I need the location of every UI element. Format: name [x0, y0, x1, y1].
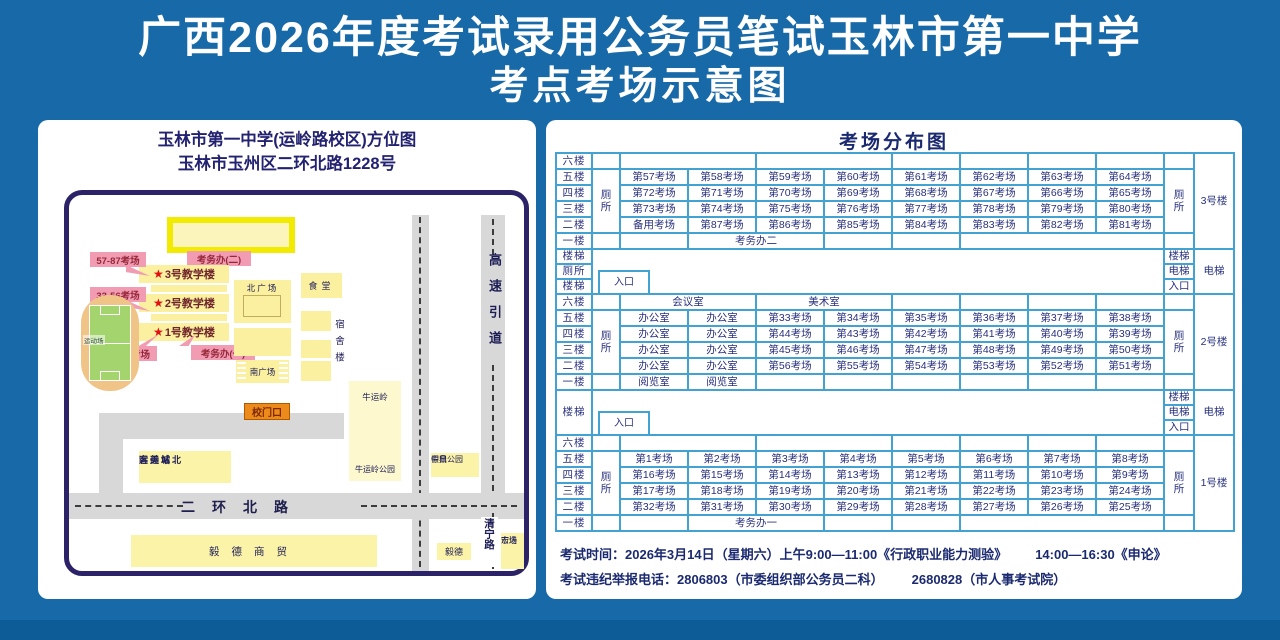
room-cell: 第24考场 [1096, 483, 1164, 499]
teaching-building-3: ★3号教学楼 [139, 265, 229, 283]
school-entrance-road [99, 413, 344, 439]
room-cell: 备用考场 [620, 217, 688, 233]
hongjin-market: 宏进 市场 [501, 533, 524, 569]
note-exam-time: 考试时间：2026年3月14日（星期六）上午9:00—11:00《行政职业能力测… [560, 544, 1234, 563]
floor-row: 五楼厕所办公室办公室第33考场第34考场第35考场第36考场第37考场第38考场… [556, 310, 1234, 326]
room-cell: 第16考场 [620, 467, 688, 483]
empty-cell [1096, 435, 1164, 451]
room-cell: 第67考场 [960, 185, 1028, 201]
empty-cell [892, 233, 960, 249]
floor-row: 四楼办公室办公室第44考场第43考场第42考场第41考场第40考场第39考场 [556, 326, 1234, 342]
zhongding-park: 中鼎公园 假日 [431, 453, 479, 477]
building-label: 2号楼 [1194, 294, 1234, 390]
stairs-elevator-cell: 楼梯 [1164, 390, 1194, 405]
room-cell: 第11考场 [960, 467, 1028, 483]
room-cell: 阅览室 [620, 374, 688, 390]
room-cell: 第76考场 [824, 201, 892, 217]
room-cell: 办公室 [688, 358, 756, 374]
elevator-cell: 电梯 [1194, 249, 1234, 294]
room-cell: 办公室 [688, 342, 756, 358]
floor-row: 六楼3号楼 [556, 153, 1234, 169]
note-report-phone: 考试违纪举报电话：2806803（市委组织部公务员二科）2680828（市人事考… [560, 569, 1234, 588]
star-icon: ★ [153, 267, 164, 281]
empty-cell [960, 435, 1028, 451]
empty-cell [756, 374, 824, 390]
empty-cell [960, 374, 1028, 390]
toilet-col-cell [1164, 294, 1194, 310]
zhongding-park-line2: 假日 [431, 454, 447, 465]
room-cell: 第44考场 [756, 326, 824, 342]
floor-row: 六楼会议室美术室2号楼 [556, 294, 1234, 310]
note-exam-time-afternoon: 14:00—16:30《申论》 [1035, 547, 1167, 562]
stairs-elevator-cell: 电梯 [1164, 264, 1194, 279]
room-cell: 第37考场 [1028, 310, 1096, 326]
floor-label: 一楼 [556, 233, 592, 249]
niuyunling-park-label: 牛运岭公园 [349, 464, 401, 475]
stairs-cell: 楼梯 [556, 279, 592, 294]
room-cell: 第33考场 [756, 310, 824, 326]
floor-label: 三楼 [556, 201, 592, 217]
dorm-block [301, 361, 331, 381]
room-cell: 考务办一 [688, 515, 824, 531]
room-cell: 第10考场 [1028, 467, 1096, 483]
canteen-label: 食堂 [308, 279, 334, 292]
room-cell: 第69考场 [824, 185, 892, 201]
toilet-label: 厕所 [1164, 169, 1194, 233]
road-erhuan-north: 二环北路 [69, 493, 524, 519]
floor-label: 二楼 [556, 358, 592, 374]
room-cell: 第14考场 [756, 467, 824, 483]
empty-cell [892, 294, 960, 310]
toilet-col-cell [592, 153, 620, 169]
toilet-col-cell [1164, 435, 1194, 451]
floor-row: 一楼考务办一 [556, 515, 1234, 531]
rooms-57-87-label: 57-87考场 [90, 252, 146, 267]
toilet-label: 厕所 [1164, 451, 1194, 515]
room-cell: 第48考场 [960, 342, 1028, 358]
floor-label: 六楼 [556, 435, 592, 451]
separator-row: 楼梯入口楼梯电梯 [556, 249, 1234, 264]
empty-cell [824, 233, 892, 249]
goal-box [100, 306, 120, 315]
star-icon: ★ [153, 296, 164, 310]
empty-cell [620, 435, 756, 451]
map-frame: 高速引道 二环北路 清宁路 考务办(二) ★3号教学楼 [64, 190, 529, 576]
room-cell: 第28考场 [892, 499, 960, 515]
stairs-elevator-cell: 电梯 [1164, 405, 1194, 420]
floor-label: 五楼 [556, 169, 592, 185]
room-cell: 第84考场 [892, 217, 960, 233]
niuyunling-label: 牛运岭 [349, 391, 401, 403]
floor-row: 五楼厕所第1考场第2考场第3考场第4考场第5考场第6考场第7考场第8考场厕所 [556, 451, 1234, 467]
room-cell: 第87考场 [688, 217, 756, 233]
empty-cell [1028, 153, 1096, 169]
stairs-elevator-cell: 入口 [1164, 420, 1194, 435]
floor-label: 五楼 [556, 310, 592, 326]
room-cell: 办公室 [620, 310, 688, 326]
toilet-col-cell [592, 294, 620, 310]
room-cell: 第82考场 [1028, 217, 1096, 233]
niuyunling-park-area: 牛运岭 牛运岭公园 [349, 381, 401, 481]
distribution-panel: 考场分布图 六楼3号楼五楼厕所第57考场第58考场第59考场第60考场第61考场… [546, 120, 1242, 599]
entrance-box: 入口 [598, 270, 650, 293]
floor-label: 二楼 [556, 499, 592, 515]
floor-row: 五楼厕所第57考场第58考场第59考场第60考场第61考场第62考场第63考场第… [556, 169, 1234, 185]
room-cell: 第63考场 [1028, 169, 1096, 185]
north-square-footprint [243, 295, 281, 317]
room-cell: 第36考场 [960, 310, 1028, 326]
empty-cell [1096, 294, 1164, 310]
room-cell: 第64考场 [1096, 169, 1164, 185]
toilet-col-cell [592, 515, 620, 531]
room-cell: 第31考场 [688, 499, 756, 515]
exam-table-body: 六楼3号楼五楼厕所第57考场第58考场第59考场第60考场第61考场第62考场第… [556, 153, 1234, 531]
room-cell: 第43考场 [824, 326, 892, 342]
distribution-title: 考场分布图 [546, 127, 1242, 154]
room-cell: 第3考场 [756, 451, 824, 467]
floor-label: 一楼 [556, 374, 592, 390]
empty-cell [892, 153, 960, 169]
floor-row: 四楼第72考场第71考场第70考场第69考场第68考场第67考场第66考场第65… [556, 185, 1234, 201]
teaching-building-2-label: 2号教学楼 [165, 295, 215, 311]
toilet-col-cell [592, 233, 620, 249]
empty-cell [1028, 435, 1096, 451]
room-cell: 第51考场 [1096, 358, 1164, 374]
room-cell: 第66考场 [1028, 185, 1096, 201]
separator-row: 楼梯入口楼梯电梯 [556, 390, 1234, 405]
poster-title: 广西2026年度考试录用公务员笔试玉林市第一中学 考点考场示意图 [0, 14, 1280, 110]
room-cell: 第32考场 [620, 499, 688, 515]
room-cell: 第50考场 [1096, 342, 1164, 358]
room-cell: 第72考场 [620, 185, 688, 201]
room-cell: 第13考场 [824, 467, 892, 483]
erhuan-dash-left [75, 505, 183, 507]
floor-row: 二楼办公室办公室第56考场第55考场第54考场第53考场第52考场第51考场 [556, 358, 1234, 374]
stairs-elevator-cell: 楼梯 [1164, 249, 1194, 264]
room-cell: 第83考场 [960, 217, 1028, 233]
room-cell: 美术室 [756, 294, 892, 310]
note-exam-time-label: 考试时间： [560, 547, 625, 562]
toilet-col-cell [1164, 153, 1194, 169]
room-cell: 第61考场 [892, 169, 960, 185]
yide-trade-center: 毅德商贸 [131, 535, 377, 567]
room-cell: 第74考场 [688, 201, 756, 217]
room-cell: 第39考场 [1096, 326, 1164, 342]
yide-building: 毅德 [437, 543, 471, 560]
room-cell: 第6考场 [960, 451, 1028, 467]
room-cell: 第22考场 [960, 483, 1028, 499]
south-square-label: 南广场 [250, 366, 276, 378]
room-cell: 第27考场 [960, 499, 1028, 515]
goal-box [100, 371, 120, 380]
room-cell: 第49考场 [1028, 342, 1096, 358]
campus-map: 高速引道 二环北路 清宁路 考务办(二) ★3号教学楼 [69, 195, 524, 571]
toilet-col-cell [1164, 233, 1194, 249]
ground-area-cell: 入口 [592, 249, 1164, 294]
ground-area-cell: 入口 [592, 390, 1164, 435]
room-cell: 第80考场 [1096, 201, 1164, 217]
sports-field-label: 运动场 [83, 335, 105, 345]
room-cell: 第7考场 [1028, 451, 1096, 467]
yide-label: 毅德 [445, 545, 463, 558]
room-cell: 第59考场 [756, 169, 824, 185]
room-cell: 第12考场 [892, 467, 960, 483]
floor-label: 一楼 [556, 515, 592, 531]
floor-label: 三楼 [556, 342, 592, 358]
empty-cell [1028, 374, 1096, 390]
empty-cell [960, 515, 1164, 531]
toilet-label: 厕所 [592, 169, 620, 233]
room-cell: 第54考场 [892, 358, 960, 374]
room-cell: 第19考场 [756, 483, 824, 499]
bus-station: 运美城北 客运站 [139, 451, 231, 483]
bottom-strip [0, 620, 1280, 640]
room-cell: 第75考场 [756, 201, 824, 217]
floor-label: 四楼 [556, 467, 592, 483]
room-cell: 第73考场 [620, 201, 688, 217]
entrance-box: 入口 [598, 411, 650, 434]
title-line-1: 广西2026年度考试录用公务员笔试玉林市第一中学 [0, 14, 1280, 63]
building-label: 3号楼 [1194, 153, 1234, 249]
room-cell: 第65考场 [1096, 185, 1164, 201]
erhuan-dash-right [361, 505, 517, 507]
room-cell: 会议室 [620, 294, 756, 310]
room-cell: 办公室 [620, 326, 688, 342]
room-cell: 第70考场 [756, 185, 824, 201]
room-cell: 第35考场 [892, 310, 960, 326]
erhuan-road-label: 二环北路 [181, 497, 305, 517]
room-cell: 第21考场 [892, 483, 960, 499]
empty-cell [756, 153, 892, 169]
room-cell: 第38考场 [1096, 310, 1164, 326]
empty-cell [620, 153, 756, 169]
floor-label: 五楼 [556, 451, 592, 467]
south-square: 南广场 [236, 360, 289, 383]
room-cell: 第29考场 [824, 499, 892, 515]
floor-row: 四楼第16考场第15考场第14考场第13考场第12考场第11考场第10考场第9考… [556, 467, 1234, 483]
note-report-phone-1: 2806803（市委组织部公务员二科） [677, 572, 884, 587]
floor-label: 四楼 [556, 185, 592, 201]
room-cell: 第46考场 [824, 342, 892, 358]
floor-label: 六楼 [556, 153, 592, 169]
stairs-cell: 楼梯 [556, 390, 592, 435]
floor-label: 四楼 [556, 326, 592, 342]
stairs-cell: 厕所 [556, 264, 592, 279]
ramp-dash-top [492, 219, 494, 255]
map-heading-line2: 玉林市玉州区二环北路1228号 [38, 153, 536, 177]
toilet-label: 厕所 [1164, 310, 1194, 374]
empty-cell [824, 515, 892, 531]
highway-ramp-label: 高速引道 [485, 253, 504, 369]
toilet-col-cell [592, 374, 620, 390]
building-label: 1号楼 [1194, 435, 1234, 531]
room-cell: 办公室 [620, 342, 688, 358]
dorm-block [301, 311, 331, 331]
canteen-building: 食堂 [301, 273, 342, 298]
floor-label: 二楼 [556, 217, 592, 233]
room-cell: 第17考场 [620, 483, 688, 499]
teaching-building-3-label: 3号教学楼 [165, 266, 215, 282]
exam-table: 六楼3号楼五楼厕所第57考场第58考场第59考场第60考场第61考场第62考场第… [555, 152, 1235, 532]
floor-row: 一楼阅览室阅览室 [556, 374, 1234, 390]
room-cell: 办公室 [688, 310, 756, 326]
room-cell: 第4考场 [824, 451, 892, 467]
room-cell: 第42考场 [892, 326, 960, 342]
floor-row: 二楼备用考场第87考场第86考场第85考场第84考场第83考场第82考场第81考… [556, 217, 1234, 233]
room-cell: 办公室 [620, 358, 688, 374]
room-cell: 第26考场 [1028, 499, 1096, 515]
room-cell: 第45考场 [756, 342, 824, 358]
toilet-col-cell [592, 435, 620, 451]
room-cell: 第78考场 [960, 201, 1028, 217]
ring-building [167, 217, 295, 253]
note-exam-time-morning: 2026年3月14日（星期六）上午9:00—11:00《行政职业能力测验》 [625, 547, 1007, 562]
toilet-label: 厕所 [592, 451, 620, 515]
elevator-cell: 电梯 [1194, 390, 1234, 435]
empty-cell [892, 515, 960, 531]
empty-cell [960, 233, 1164, 249]
north-square-label: 北广场 [234, 282, 291, 294]
building-wing [151, 314, 227, 321]
floor-row: 一楼考务办二 [556, 233, 1234, 249]
building-wing [151, 285, 227, 292]
room-cell: 第81考场 [1096, 217, 1164, 233]
teaching-building-2: ★2号教学楼 [139, 294, 229, 312]
room-cell: 第30考场 [756, 499, 824, 515]
room-cell: 第60考场 [824, 169, 892, 185]
sports-field: 运动场 [81, 295, 139, 391]
room-cell: 第41考场 [960, 326, 1028, 342]
school-entrance-road-branch [99, 413, 123, 497]
toilet-label: 厕所 [592, 310, 620, 374]
map-panel: 玉林市第一中学(运岭路校区)方位图 玉林市玉州区二环北路1228号 高速引道 二… [38, 120, 536, 599]
poster-page: 广西2026年度考试录用公务员笔试玉林市第一中学 考点考场示意图 玉林市第一中学… [0, 0, 1280, 640]
ramp-dash-bottom [492, 365, 494, 491]
room-cell: 第2考场 [688, 451, 756, 467]
room-cell: 第34考场 [824, 310, 892, 326]
room-cell: 第62考场 [960, 169, 1028, 185]
empty-cell [756, 435, 892, 451]
room-cell: 第79考场 [1028, 201, 1096, 217]
room-cell: 第40考场 [1028, 326, 1096, 342]
room-cell: 第23考场 [1028, 483, 1096, 499]
toilet-col-cell [1164, 515, 1194, 531]
stairs-cell: 楼梯 [556, 249, 592, 264]
floor-label: 六楼 [556, 294, 592, 310]
room-cell: 第25考场 [1096, 499, 1164, 515]
hongjin-market-line2: 市场 [501, 535, 517, 548]
room-cell: 第5考场 [892, 451, 960, 467]
room-cell: 第58考场 [688, 169, 756, 185]
empty-cell [892, 374, 960, 390]
map-heading: 玉林市第一中学(运岭路校区)方位图 玉林市玉州区二环北路1228号 [38, 129, 536, 177]
room-cell: 第1考场 [620, 451, 688, 467]
note-report-label: 考试违纪举报电话： [560, 572, 677, 587]
floor-row: 三楼办公室办公室第45考场第46考场第47考场第48考场第49考场第50考场 [556, 342, 1234, 358]
room-cell: 考务办二 [688, 233, 824, 249]
dorm-label: 宿舍楼 [331, 319, 345, 385]
floor-row: 三楼第73考场第74考场第75考场第76考场第77考场第78考场第79考场第80… [556, 201, 1234, 217]
room-cell: 第53考场 [960, 358, 1028, 374]
empty-cell [1096, 374, 1164, 390]
empty-cell [620, 515, 688, 531]
center-building [234, 328, 291, 356]
map-heading-line1: 玉林市第一中学(运岭路校区)方位图 [38, 129, 536, 153]
north-square: 北广场 [234, 280, 291, 323]
dorm-block [301, 340, 331, 358]
stairs-elevator-cell: 入口 [1164, 279, 1194, 294]
note-report-phone-2: 2680828（市人事考试院） [912, 572, 1067, 587]
empty-cell [824, 374, 892, 390]
room-cell: 第68考场 [892, 185, 960, 201]
empty-cell [892, 435, 960, 451]
bus-station-line2: 客运站 [139, 454, 172, 468]
room-cell: 第8考场 [1096, 451, 1164, 467]
school-gate-label: 校门口 [244, 403, 290, 420]
floor-row: 六楼1号楼 [556, 435, 1234, 451]
room-cell: 第85考场 [824, 217, 892, 233]
room-cell: 第71考场 [688, 185, 756, 201]
teaching-building-1-label: 1号教学楼 [165, 324, 215, 340]
room-cell: 阅览室 [688, 374, 756, 390]
room-cell: 第18考场 [688, 483, 756, 499]
title-line-2: 考点考场示意图 [0, 65, 1280, 110]
floor-row: 二楼第32考场第31考场第30考场第29考场第28考场第27考场第26考场第25… [556, 499, 1234, 515]
room-cell: 办公室 [688, 326, 756, 342]
room-cell: 第9考场 [1096, 467, 1164, 483]
yide-trade-label: 毅德商贸 [209, 544, 299, 559]
room-cell: 第52考场 [1028, 358, 1096, 374]
empty-cell [1096, 153, 1164, 169]
room-cell: 第57考场 [620, 169, 688, 185]
empty-cell [960, 153, 1028, 169]
floor-label: 三楼 [556, 483, 592, 499]
empty-cell [620, 233, 688, 249]
room-cell: 第56考场 [756, 358, 824, 374]
room-cell: 第47考场 [892, 342, 960, 358]
qingning-road-label: 清宁路 [481, 517, 498, 567]
room-cell: 第15考场 [688, 467, 756, 483]
room-cell: 第55考场 [824, 358, 892, 374]
toilet-col-cell [1164, 374, 1194, 390]
empty-cell [1028, 294, 1096, 310]
empty-cell [960, 294, 1028, 310]
room-cell: 第86考场 [756, 217, 824, 233]
floor-row: 三楼第17考场第18考场第19考场第20考场第21考场第22考场第23考场第24… [556, 483, 1234, 499]
notes: 考试时间：2026年3月14日（星期六）上午9:00—11:00《行政职业能力测… [560, 538, 1234, 588]
room-cell: 第20考场 [824, 483, 892, 499]
exam-office-2-label: 考务办(二) [187, 251, 251, 266]
room-cell: 第77考场 [892, 201, 960, 217]
